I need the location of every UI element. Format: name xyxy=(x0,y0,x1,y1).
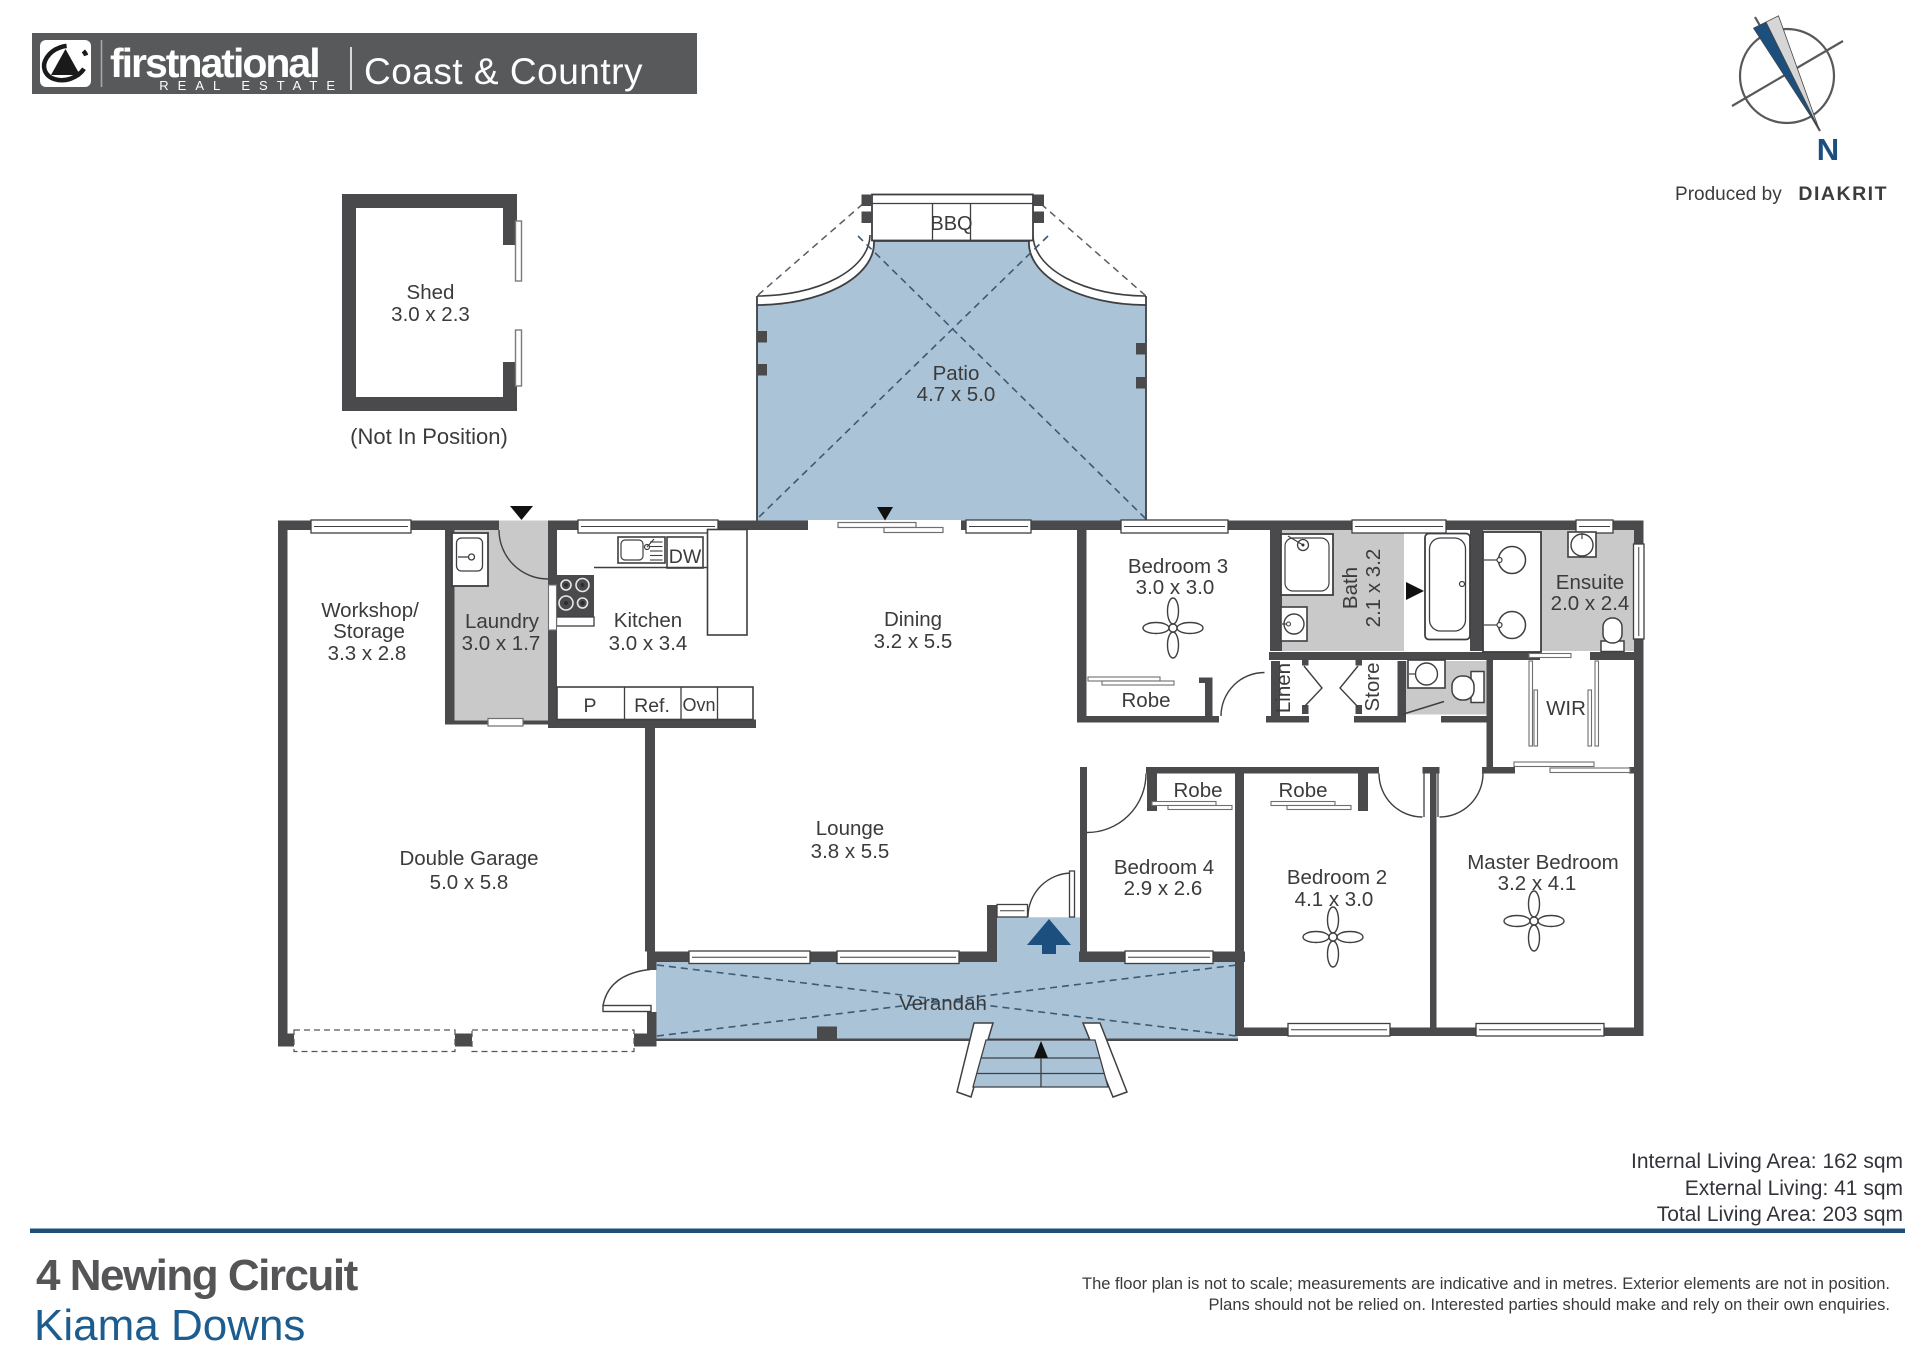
svg-text:Bedroom 3: Bedroom 3 xyxy=(1128,555,1228,578)
svg-text:3.0 x 1.7: 3.0 x 1.7 xyxy=(462,632,541,655)
svg-text:3.8 x 5.5: 3.8 x 5.5 xyxy=(811,840,890,863)
svg-text:Store: Store xyxy=(1361,663,1384,712)
svg-text:Plans should not be relied on.: Plans should not be relied on. Intereste… xyxy=(1209,1296,1891,1314)
svg-text:Robe: Robe xyxy=(1278,779,1327,802)
svg-text:2.0 x 2.4: 2.0 x 2.4 xyxy=(1551,592,1630,615)
svg-text:Total Living Area: 203 sqm: Total Living Area: 203 sqm xyxy=(1657,1203,1903,1226)
svg-text:Coast & Country: Coast & Country xyxy=(364,51,643,92)
svg-text:External Living: 41 sqm: External Living: 41 sqm xyxy=(1685,1177,1903,1200)
svg-text:P: P xyxy=(583,695,596,717)
svg-text:(Not In Position): (Not In Position) xyxy=(350,424,508,449)
svg-text:Laundry: Laundry xyxy=(465,610,540,633)
svg-text:Linen: Linen xyxy=(1272,663,1295,713)
svg-text:3.2 x 4.1: 3.2 x 4.1 xyxy=(1498,872,1577,895)
svg-text:5.0 x 5.8: 5.0 x 5.8 xyxy=(430,871,509,894)
svg-text:Dining: Dining xyxy=(884,608,942,631)
svg-text:DIAKRIT: DIAKRIT xyxy=(1798,183,1888,205)
svg-text:Produced by: Produced by xyxy=(1675,184,1787,205)
svg-text:WIR: WIR xyxy=(1546,697,1586,720)
svg-text:DW: DW xyxy=(669,546,702,568)
svg-text:Bath: Bath xyxy=(1339,567,1362,609)
svg-text:3.2 x 5.5: 3.2 x 5.5 xyxy=(874,630,953,653)
svg-text:Ref.: Ref. xyxy=(634,695,670,717)
svg-text:Ovn: Ovn xyxy=(682,695,715,715)
svg-text:4 Newing Circuit: 4 Newing Circuit xyxy=(36,1251,359,1300)
svg-text:3.0 x 3.0: 3.0 x 3.0 xyxy=(1136,576,1215,599)
svg-text:2.1 x 3.2: 2.1 x 3.2 xyxy=(1362,549,1385,628)
svg-text:Robe: Robe xyxy=(1121,689,1170,712)
svg-text:Workshop/: Workshop/ xyxy=(321,599,419,622)
svg-text:Lounge: Lounge xyxy=(816,817,884,840)
svg-text:N: N xyxy=(1817,132,1839,167)
svg-text:Shed: Shed xyxy=(407,281,455,304)
svg-text:Patio: Patio xyxy=(933,362,980,385)
svg-text:Storage: Storage xyxy=(333,620,405,643)
svg-text:Bedroom 2: Bedroom 2 xyxy=(1287,866,1387,889)
svg-text:The floor plan is not to scale: The floor plan is not to scale; measurem… xyxy=(1082,1275,1890,1293)
svg-text:Bedroom 4: Bedroom 4 xyxy=(1114,856,1214,879)
svg-text:Double Garage: Double Garage xyxy=(399,847,538,870)
svg-text:REAL ESTATE: REAL ESTATE xyxy=(159,78,344,93)
svg-text:Kitchen: Kitchen xyxy=(614,609,682,632)
svg-text:Verandah: Verandah xyxy=(899,992,987,1015)
svg-text:2.9 x 2.6: 2.9 x 2.6 xyxy=(1124,877,1203,900)
svg-text:Internal Living Area: 162 sqm: Internal Living Area: 162 sqm xyxy=(1631,1150,1903,1173)
svg-text:4.7 x 5.0: 4.7 x 5.0 xyxy=(917,383,996,406)
svg-text:Robe: Robe xyxy=(1173,779,1222,802)
svg-text:3.0 x 2.3: 3.0 x 2.3 xyxy=(391,303,470,326)
svg-text:3.0 x 3.4: 3.0 x 3.4 xyxy=(609,632,688,655)
svg-text:Kiama Downs: Kiama Downs xyxy=(34,1301,305,1350)
svg-text:4.1 x 3.0: 4.1 x 3.0 xyxy=(1295,888,1374,911)
svg-text:Ensuite: Ensuite xyxy=(1556,571,1624,594)
svg-text:3.3 x 2.8: 3.3 x 2.8 xyxy=(328,642,407,665)
svg-text:BBQ: BBQ xyxy=(930,213,972,235)
svg-text:Master Bedroom: Master Bedroom xyxy=(1467,851,1619,874)
